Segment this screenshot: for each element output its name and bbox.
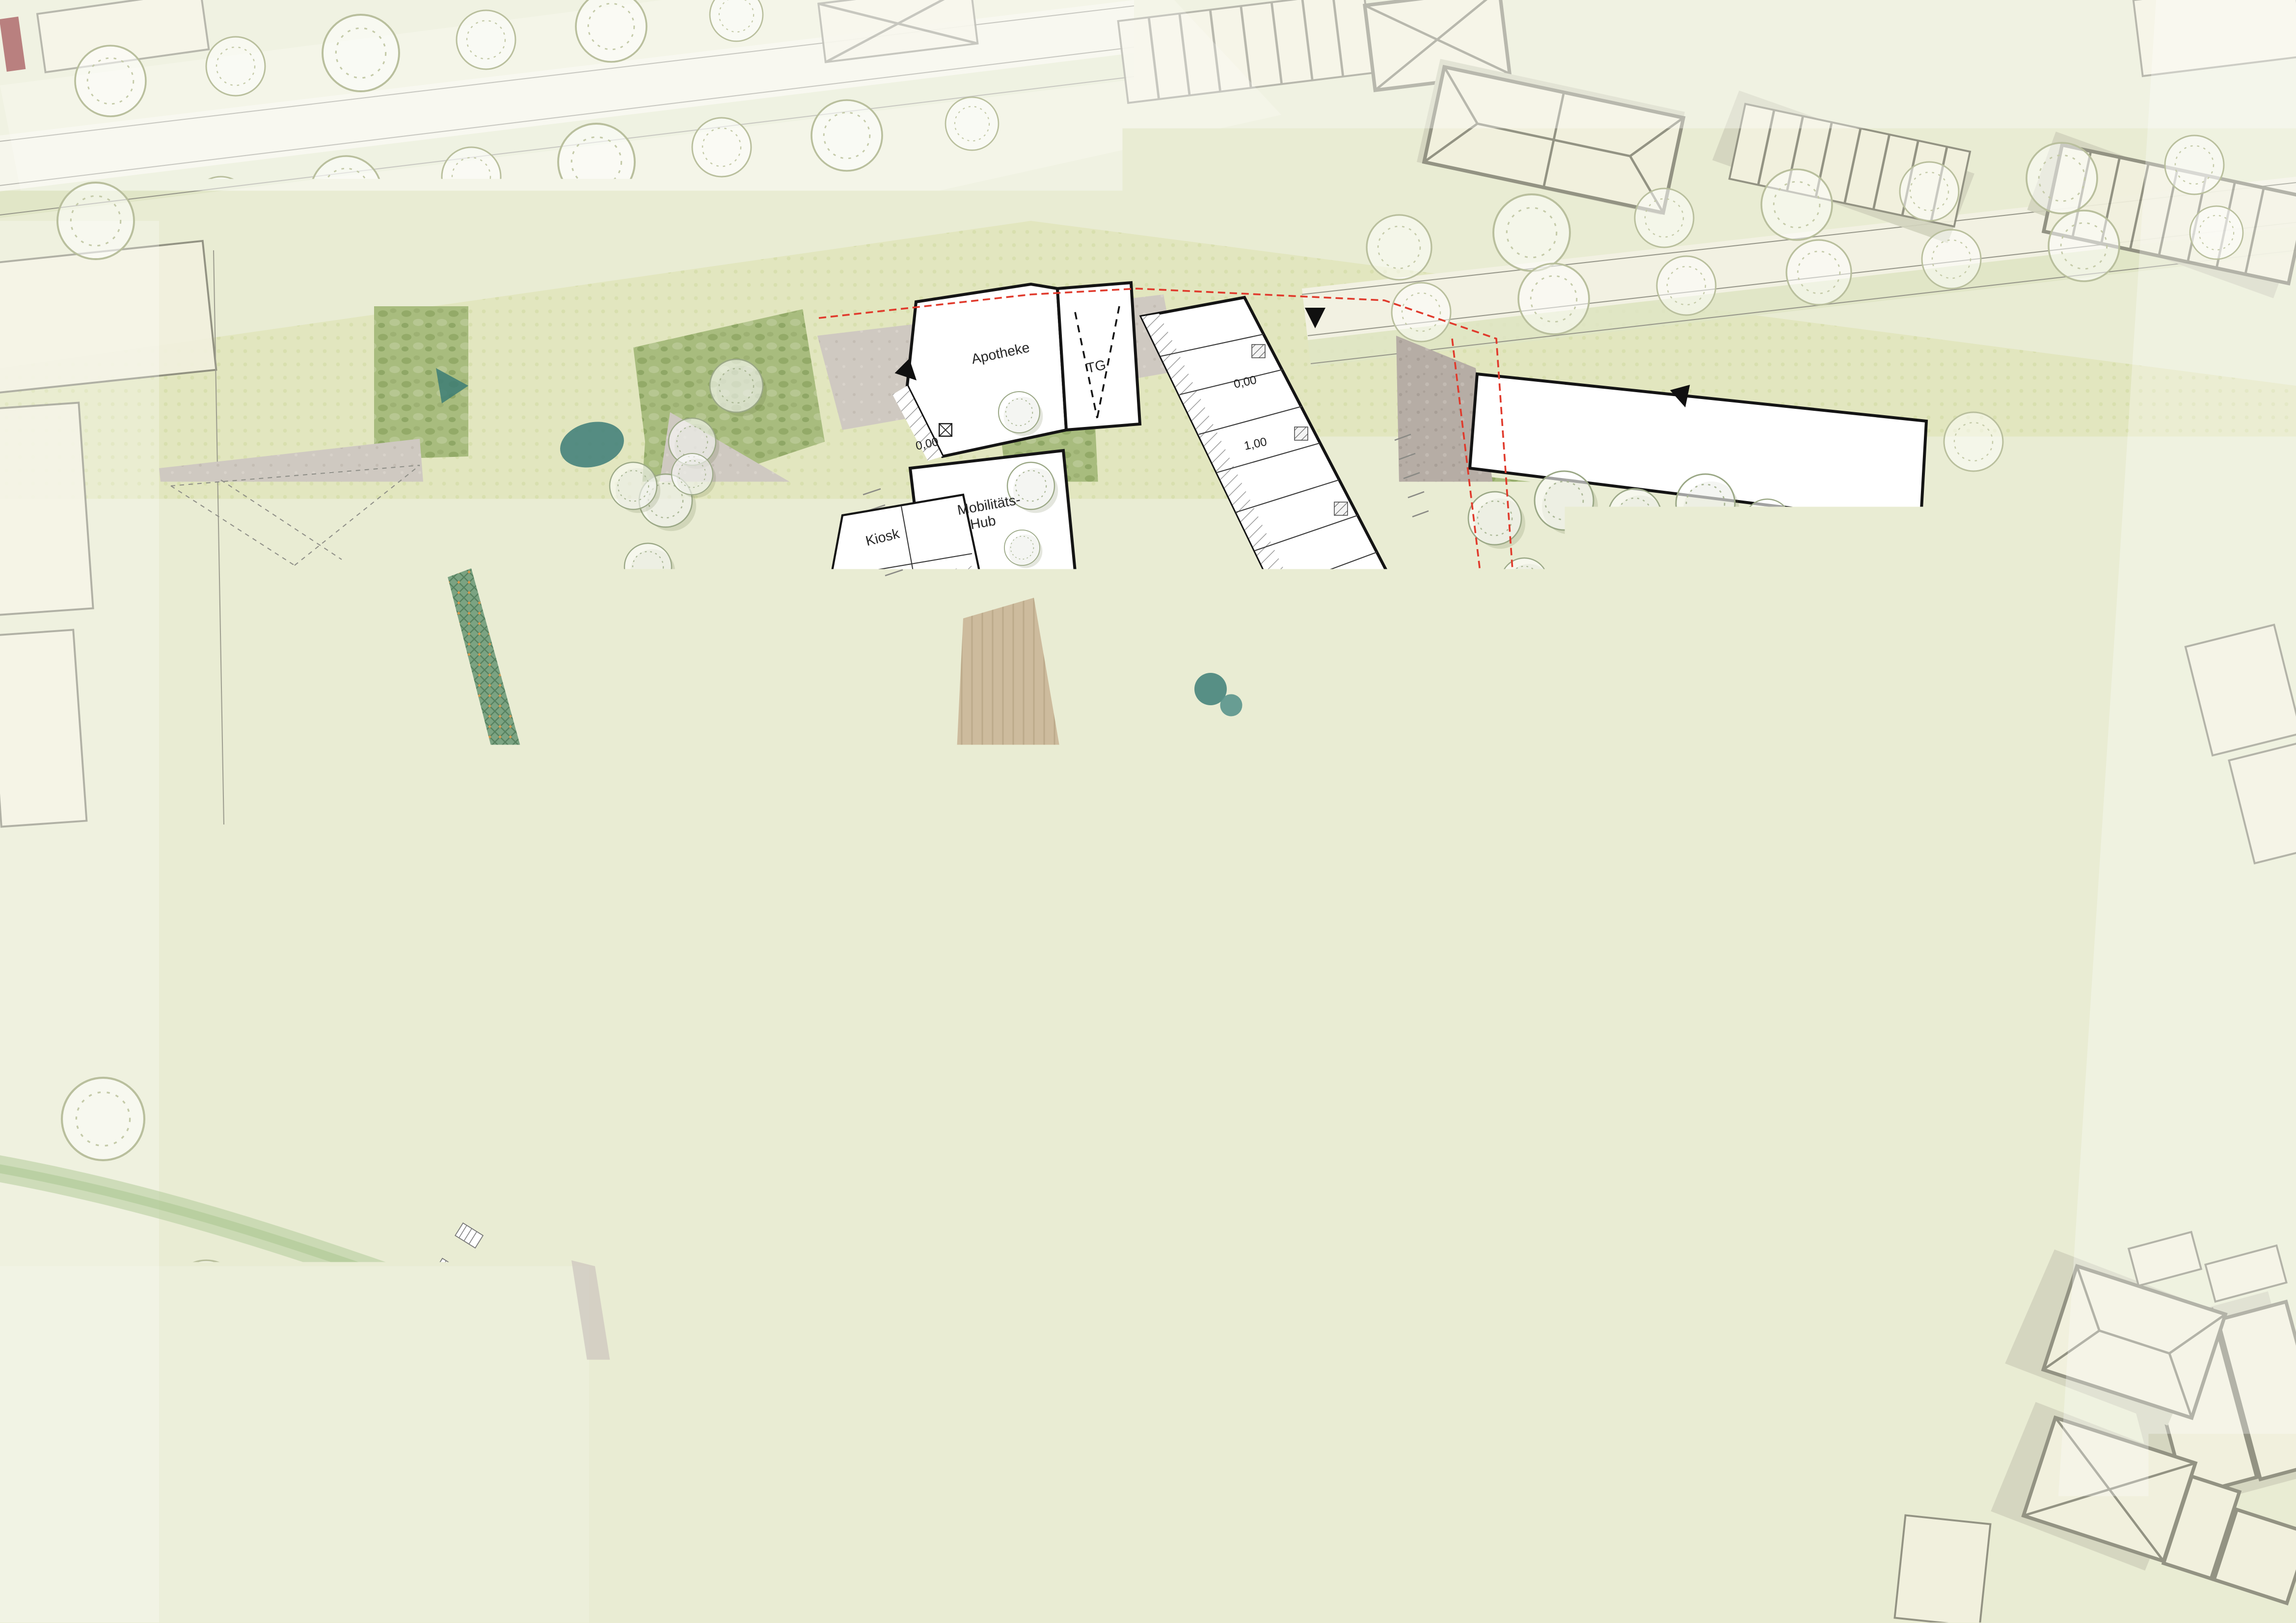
label-stelle: stelle — [497, 982, 531, 999]
site-plan: Apotheke TG Mobilitäts- Hub Kiosk Quarti… — [0, 0, 2296, 1623]
label-treff: treff — [1483, 673, 1509, 691]
building-laden-cafe — [751, 935, 999, 1249]
label-kiosk-u: Kiosk u. — [497, 945, 548, 963]
